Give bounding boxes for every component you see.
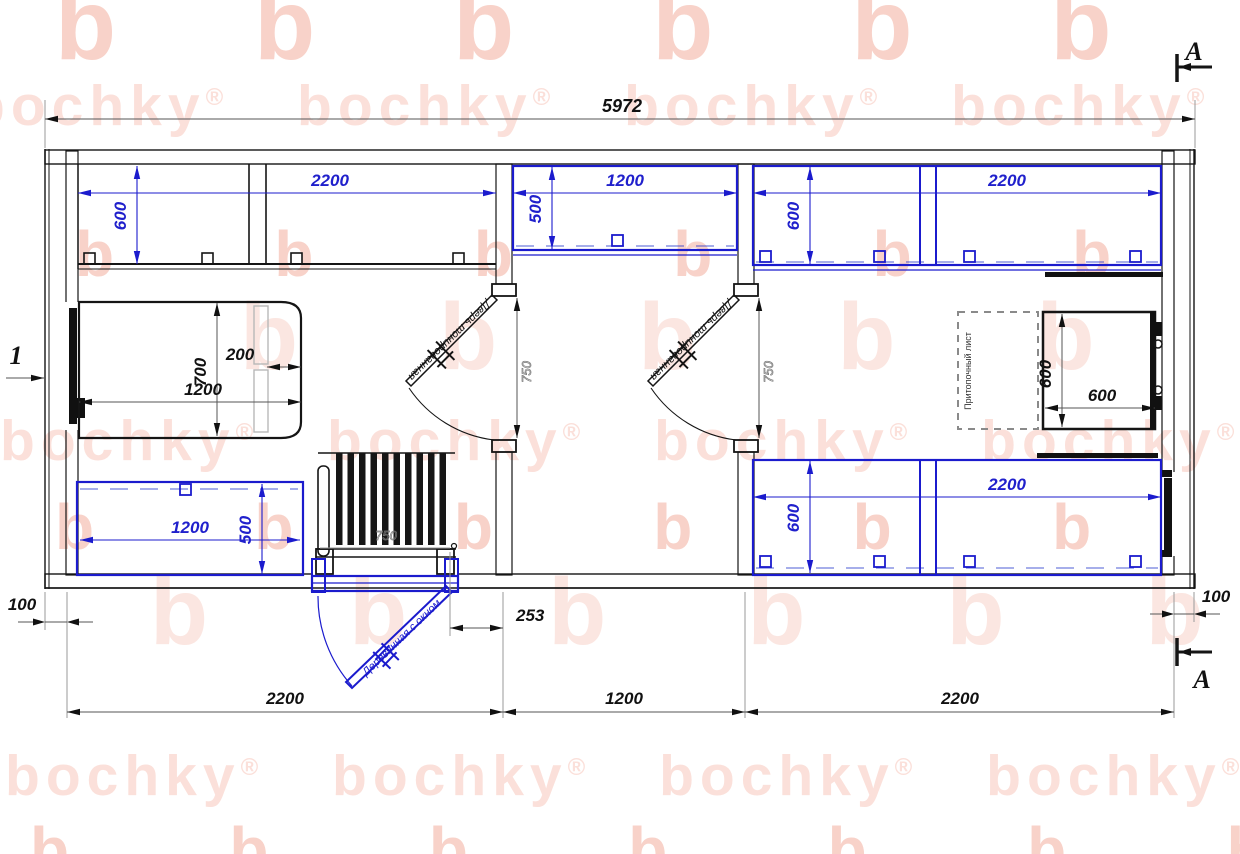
stove	[1043, 312, 1162, 429]
dim-wall-left: 100	[8, 595, 37, 614]
right-room-top-bench	[753, 166, 1163, 277]
stove-floor-sheet: Притопочный лист	[958, 312, 1038, 429]
dim-mid-bench-width: 1200	[606, 171, 644, 190]
floor-plan-canvas: bbbbbbbbbbochky® bochky® bochky® bochky®…	[0, 0, 1240, 854]
left-room-bed	[79, 302, 301, 438]
left-room-top-bench	[78, 164, 496, 269]
dim-stove-depth: 600	[1036, 359, 1055, 388]
entrance-door-width: 750	[375, 528, 397, 543]
interior-door-2-label: Дверь тонированная	[647, 296, 736, 382]
stove-sheet-label: Притопочный лист	[963, 332, 973, 410]
dim-left-bench-width: 2200	[310, 171, 349, 190]
dim-mid-bench-depth: 500	[526, 194, 545, 223]
dim-bed-length: 1200	[184, 380, 222, 399]
dim-stove-width: 600	[1088, 386, 1117, 405]
dim-wall-right: 100	[1202, 587, 1231, 606]
dim-right-lower-bench-depth: 600	[784, 503, 803, 532]
section-label-bottom: A	[1191, 665, 1210, 694]
dimension-lines: 5972 2200 600 700 200 1200 1200 500 1200…	[8, 96, 1231, 712]
dim-right-top-bench-depth: 600	[784, 201, 803, 230]
interior-door-1-width: 750	[519, 360, 534, 382]
interior-door-2-width: 750	[761, 360, 776, 382]
dim-bottom-left-room: 2200	[265, 689, 304, 708]
dim-bed-headrest: 200	[225, 345, 255, 364]
section-label-top: A	[1183, 37, 1202, 66]
view-label-1: 1	[10, 341, 23, 370]
entrance-door: Деревянная с окном	[312, 559, 458, 688]
dim-right-lower-bench-width: 2200	[987, 475, 1026, 494]
floor-plan-drawing: Притопочный лист Дверь тонированная 750	[0, 0, 1240, 854]
dim-right-top-bench-width: 2200	[987, 171, 1026, 190]
interior-door-1: Дверь тонированная 750	[405, 295, 534, 440]
view-mark-1: 1	[6, 341, 44, 378]
right-room-lower-bench	[753, 453, 1161, 575]
dim-left-lower-bench-width: 1200	[171, 518, 209, 537]
dim-bottom-right-room: 2200	[940, 689, 979, 708]
dim-door-offset: 253	[515, 606, 545, 625]
interior-door-1-label: Дверь тонированная	[405, 296, 494, 382]
interior-door-2: Дверь тонированная 750	[647, 295, 776, 440]
section-mark-bottom: A	[1177, 638, 1212, 694]
entrance-door-label: Деревянная с окном	[359, 597, 444, 680]
dim-left-lower-bench-depth: 500	[236, 515, 255, 544]
dim-total: 5972	[602, 96, 642, 116]
section-mark-top: A	[1177, 37, 1212, 82]
entrance-grate: 750	[316, 453, 457, 574]
dim-bottom-middle-room: 1200	[605, 689, 643, 708]
dim-left-bench-depth: 600	[111, 201, 130, 230]
